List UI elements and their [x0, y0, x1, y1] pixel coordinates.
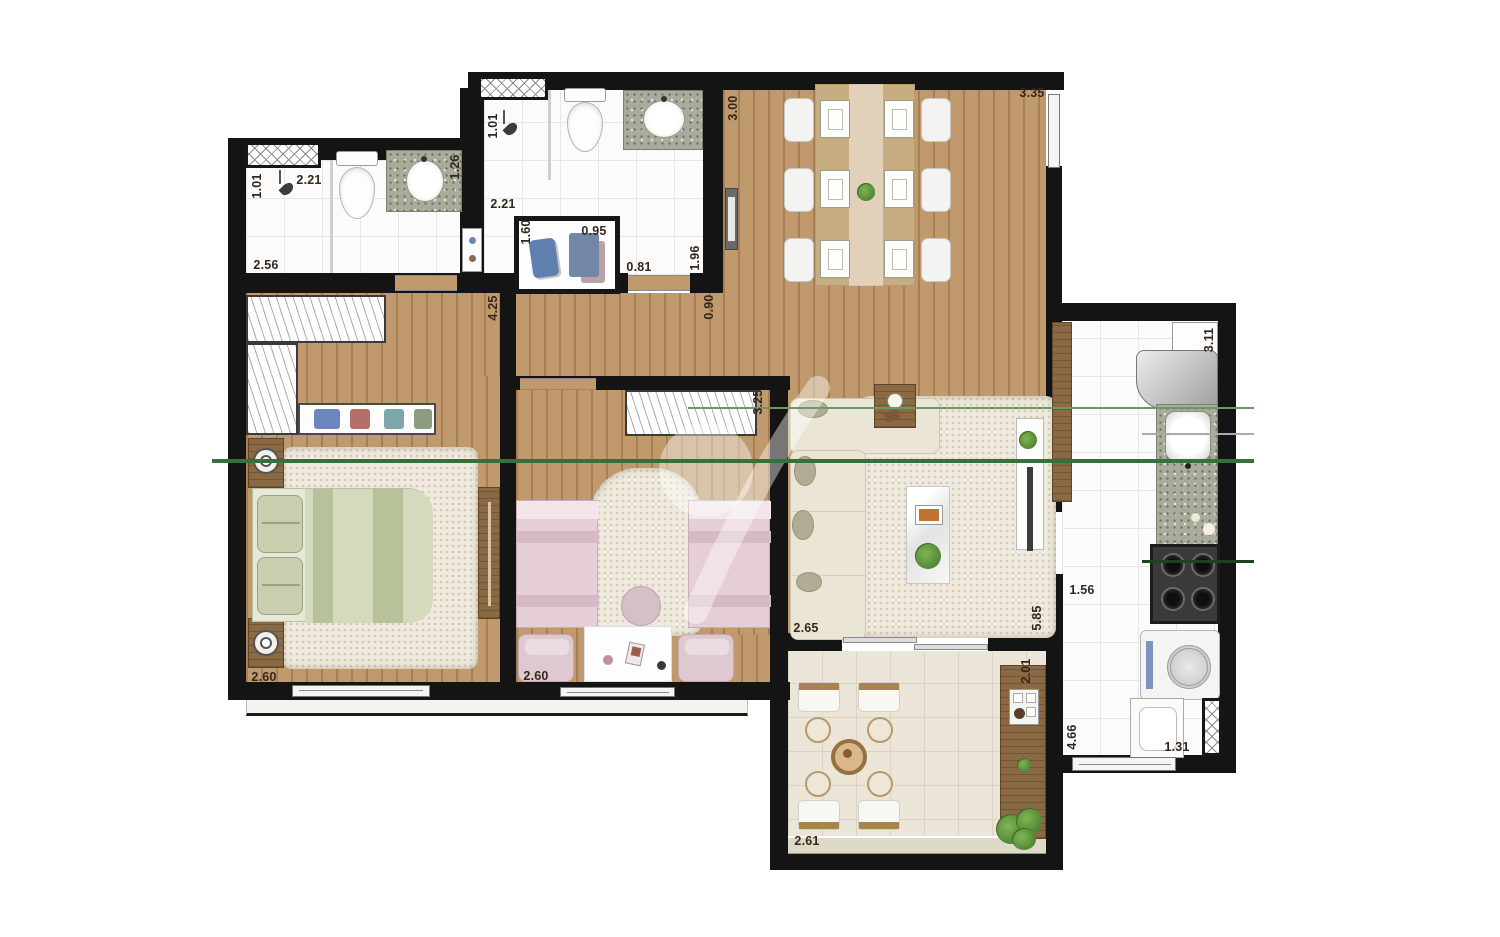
- master-closet-shelf: [298, 403, 436, 435]
- dim-wardrobe-length: 1.60: [519, 219, 533, 244]
- bath2-faucet-icon: [661, 96, 667, 102]
- wall-bath2-right: [703, 72, 723, 293]
- dim-wardrobe-width: 0.95: [581, 224, 606, 238]
- master-bed-band: [313, 489, 333, 623]
- balcony-seat: [867, 717, 893, 743]
- kitchen-faucet-icon: [1185, 463, 1191, 469]
- dim-bath2-width: 0.81: [626, 260, 651, 274]
- wall-master-kids: [500, 293, 516, 700]
- master-bed-band: [373, 489, 403, 623]
- dining-chair: [921, 98, 951, 142]
- coffee-table-tray: [915, 505, 943, 525]
- bath2-toilet-tank: [564, 88, 606, 102]
- wall-top: [468, 72, 1064, 90]
- apartment-floor-plan: 1.01 2.21 2.56 1.26 1.01 2.21 1.60 0.95 …: [0, 0, 1500, 937]
- place-setting: [884, 170, 914, 208]
- coffee-table-plant: [915, 543, 941, 569]
- dim-hall-width: 0.90: [702, 294, 716, 319]
- bath2-shower-arm-icon: [503, 110, 505, 124]
- dining-chair: [784, 168, 814, 212]
- dim-living-width: 2.65: [793, 621, 818, 635]
- sofa-pillow: [796, 572, 822, 592]
- dim-kids-width: 2.60: [523, 669, 548, 683]
- bath1-niche: [462, 228, 482, 272]
- door-kids: [520, 378, 596, 390]
- bath1-faucet-icon: [421, 156, 427, 162]
- window-bath1: [245, 142, 321, 168]
- wall-kitchen-top: [1046, 303, 1236, 321]
- dim-balcony-width: 2.61: [794, 834, 819, 848]
- dim-balcony-depth: 2.01: [1019, 658, 1033, 683]
- door-master: [395, 275, 457, 291]
- folded-clothes-blue: [314, 409, 340, 429]
- dim-dining-width: 3.00: [726, 95, 740, 120]
- wall-kids-living-balcony: [770, 376, 788, 870]
- dining-chair: [784, 238, 814, 282]
- dim-kids-length: 3.25: [751, 389, 765, 414]
- kids-bed-right: [688, 500, 770, 628]
- dim-bath1-length: 2.56: [253, 258, 278, 272]
- burner-icon: [1191, 553, 1215, 577]
- kitchen-sink: [1165, 411, 1211, 461]
- bath2-sink: [643, 100, 685, 138]
- master-dresser: [478, 487, 500, 619]
- sofa-pillow: [798, 400, 828, 418]
- fridge: [1136, 350, 1218, 410]
- master-pillows-top: [257, 495, 303, 553]
- folded-clothes-green: [414, 409, 432, 429]
- burner-icon: [1161, 553, 1185, 577]
- kids-pouf: [621, 586, 661, 626]
- dim-bath1-vanity: 1.26: [448, 154, 462, 179]
- balcony-chair: [798, 800, 840, 830]
- dim-kitchen-length: 4.66: [1065, 724, 1079, 749]
- annotation-line-thin-green: [688, 407, 1254, 409]
- place-setting: [820, 170, 850, 208]
- kids-bed-pillow: [689, 501, 771, 519]
- window-bath2: [478, 76, 548, 100]
- wardrobe-garment-blue: [528, 237, 559, 278]
- floor-plan-image: 1.01 2.21 2.56 1.26 1.01 2.21 1.60 0.95 …: [0, 0, 1500, 937]
- sliding-door-panel-1: [843, 637, 917, 643]
- bath1-sink: [406, 160, 444, 202]
- dim-kitchen-door: 1.31: [1164, 740, 1189, 754]
- kitchen-counter: [1156, 404, 1218, 554]
- dim-master-width: 2.60: [251, 670, 276, 684]
- kids-playmat: [584, 626, 672, 682]
- dim-bath2-length: 1.96: [688, 245, 702, 270]
- book-icon: [884, 409, 900, 422]
- dim-living-length: 5.85: [1030, 605, 1044, 630]
- kids-bed-pillow: [517, 501, 599, 519]
- washer-label: [1146, 641, 1153, 689]
- toy-icon: [657, 661, 666, 670]
- balcony-seat: [805, 771, 831, 797]
- bath2-shower-partition: [548, 90, 551, 180]
- dim-bath1-shower-length: 2.21: [296, 173, 321, 187]
- kids-closet: [625, 390, 757, 436]
- folded-clothes-teal: [384, 409, 404, 429]
- place-setting: [820, 240, 850, 278]
- bath1-shower-partition: [330, 160, 333, 273]
- balcony-chair: [858, 682, 900, 712]
- opening-dining-right: [1048, 94, 1060, 168]
- dining-chair: [921, 238, 951, 282]
- dim-master-length: 4.25: [486, 295, 500, 320]
- balcony-table: [831, 739, 867, 775]
- annotation-line-gray: [1142, 433, 1254, 435]
- master-closet-side: [246, 343, 298, 435]
- door-service: [1072, 757, 1176, 771]
- wardrobe-garment-navy: [569, 233, 599, 277]
- place-setting: [884, 100, 914, 138]
- dim-kitchen-width: 3.11: [1202, 328, 1216, 352]
- dim-kitchen-counter: 1.56: [1069, 583, 1094, 597]
- folded-clothes-red: [350, 409, 370, 429]
- exterior-ledge: [246, 700, 748, 716]
- hall-console: [725, 188, 738, 250]
- washer-drum-icon: [1167, 645, 1211, 689]
- master-closet-top: [246, 295, 386, 343]
- dining-chair: [784, 98, 814, 142]
- sliding-door-panel-2: [914, 644, 988, 650]
- kitchen-tall-cabinet: [1052, 322, 1072, 502]
- wall-left: [228, 138, 246, 700]
- wall-balcony-bottom: [770, 854, 1063, 870]
- sofa-pillow: [792, 510, 814, 540]
- bath1-toilet-tank: [336, 151, 378, 166]
- kids-bed-left: [516, 500, 598, 628]
- burner-icon: [1161, 587, 1185, 611]
- balcony-chair: [798, 682, 840, 712]
- master-pillows-bottom: [257, 557, 303, 615]
- balcony-floor-plant: [992, 806, 1050, 852]
- balcony-chair: [858, 800, 900, 830]
- balcony-table-item: [843, 749, 852, 758]
- master-bed: [252, 488, 432, 622]
- door-bath2: [628, 275, 690, 291]
- place-setting: [820, 100, 850, 138]
- dining-chair: [921, 168, 951, 212]
- washing-machine: [1140, 630, 1220, 700]
- living-corner-table: [874, 384, 916, 428]
- annotation-line-thick-green: [212, 459, 1254, 463]
- dim-bath1-shower-width: 1.01: [250, 173, 264, 198]
- dim-bath2-shower-length: 2.21: [490, 197, 515, 211]
- balcony-seat: [867, 771, 893, 797]
- place-setting: [884, 240, 914, 278]
- window-master: [292, 685, 430, 697]
- kids-armchair-right: [678, 634, 734, 682]
- dim-dining-length: 3.35: [1019, 86, 1044, 100]
- counter-plant: [1017, 758, 1031, 772]
- balcony-tray: [1009, 689, 1039, 725]
- master-lamp-icon: [253, 630, 279, 656]
- burner-icon: [1191, 587, 1215, 611]
- toy-icon: [625, 642, 645, 667]
- window-kitchen: [1202, 698, 1222, 756]
- annotation-line-dark: [1142, 560, 1254, 563]
- bath1-shower-arm-icon: [279, 170, 281, 184]
- console-plant: [1019, 431, 1037, 449]
- dim-bath2-shower-width: 1.01: [486, 113, 500, 138]
- cup-icon: [1014, 708, 1025, 719]
- coffee-table: [906, 486, 950, 584]
- window-kids: [560, 687, 675, 697]
- wall-bath2-bottom-right: [690, 273, 723, 293]
- dining-centerpiece-plant: [857, 183, 875, 201]
- stove: [1150, 544, 1220, 624]
- tv-icon: [1027, 467, 1033, 551]
- balcony-seat: [805, 717, 831, 743]
- toy-icon: [603, 655, 613, 665]
